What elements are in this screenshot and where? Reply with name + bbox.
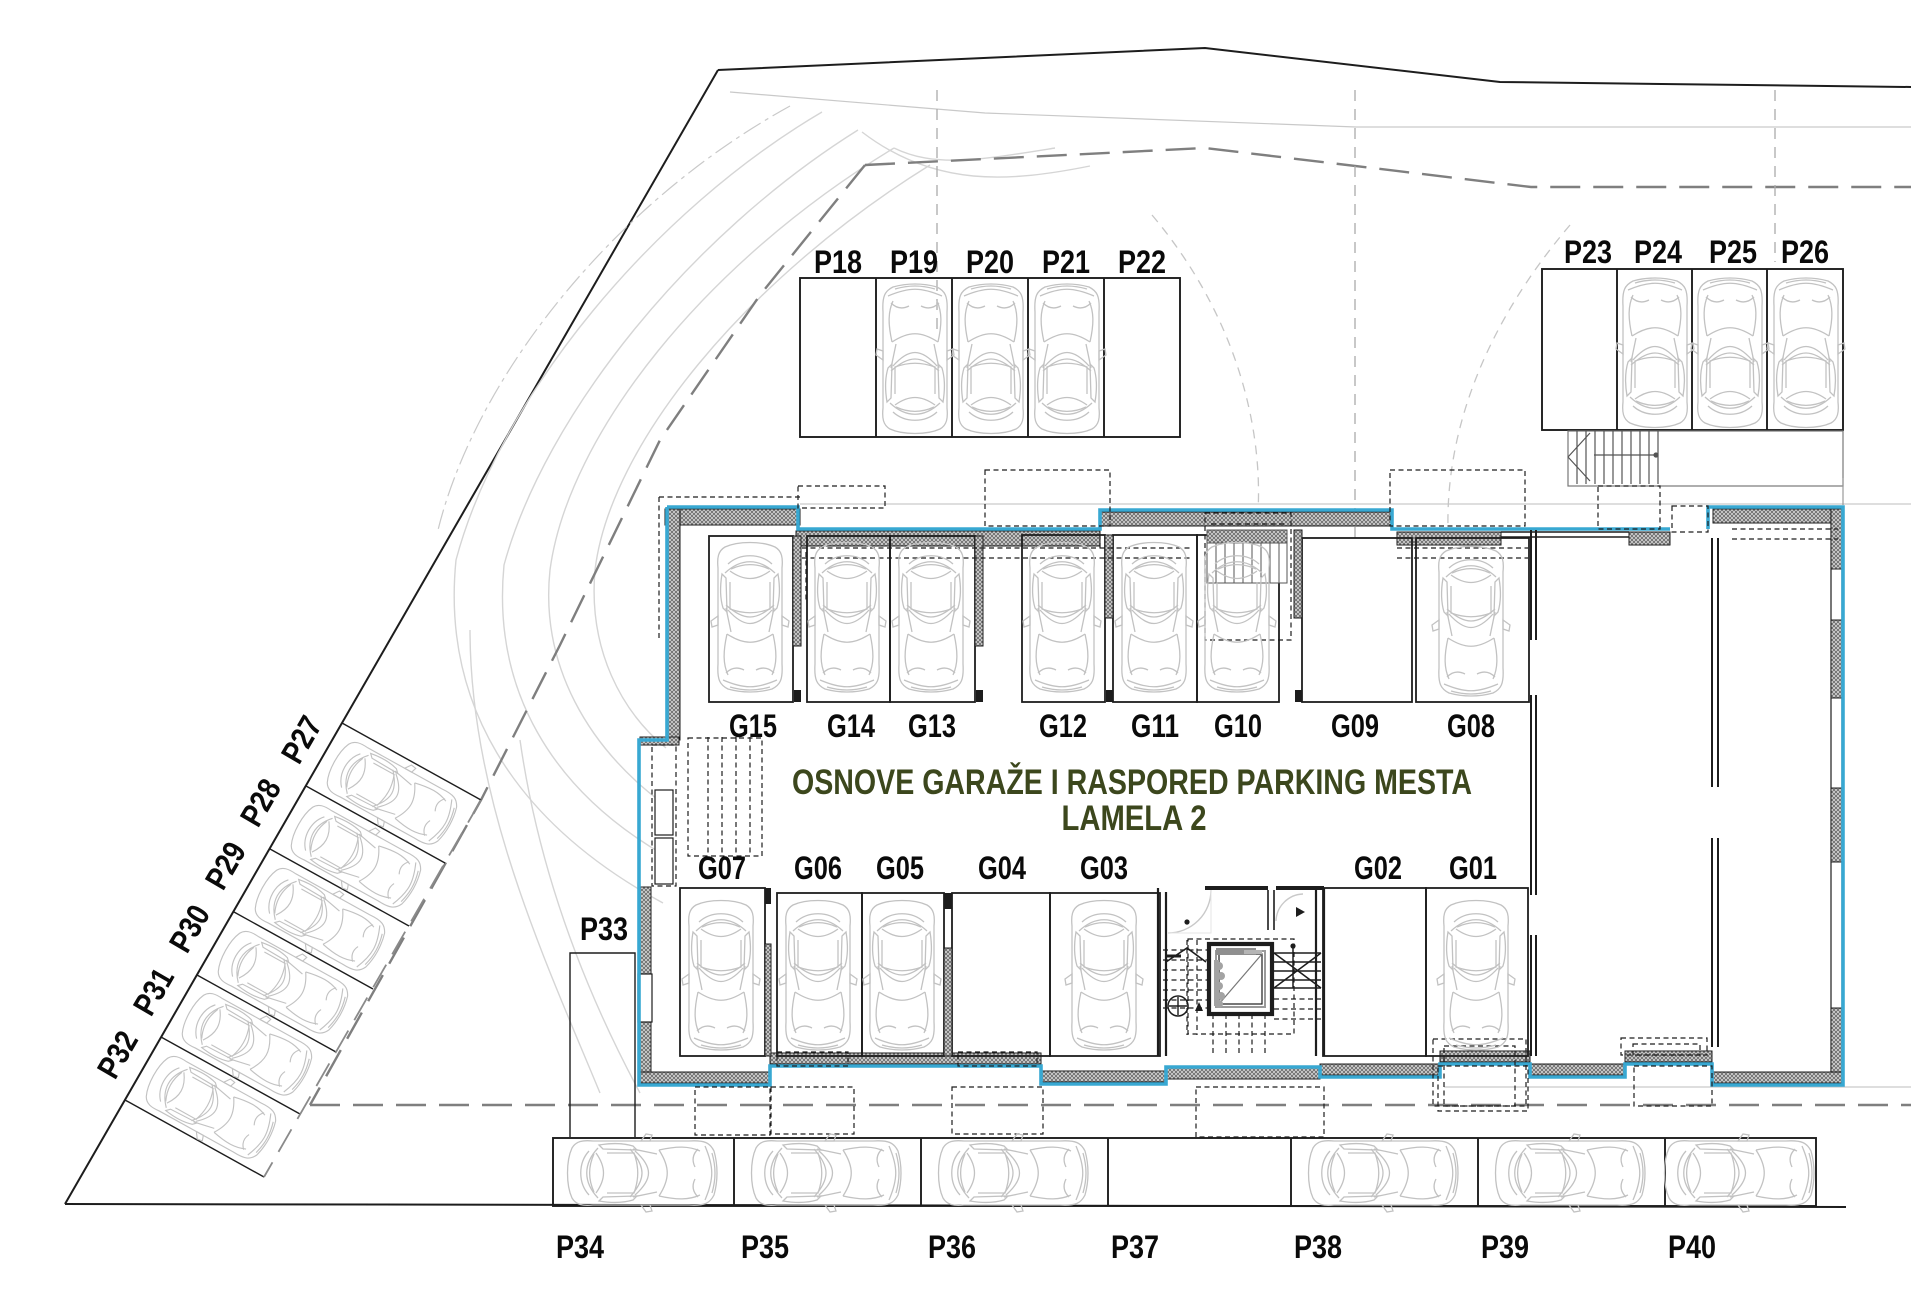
svg-text:P26: P26 bbox=[1781, 234, 1829, 270]
svg-text:P31: P31 bbox=[126, 962, 181, 1022]
svg-text:OSNOVE GARAŽE I RASPORED PARKI: OSNOVE GARAŽE I RASPORED PARKING MESTA bbox=[792, 762, 1472, 802]
svg-text:P25: P25 bbox=[1709, 234, 1757, 270]
svg-text:P32: P32 bbox=[90, 1025, 145, 1085]
svg-text:LAMELA 2: LAMELA 2 bbox=[1062, 799, 1207, 838]
svg-text:G11: G11 bbox=[1131, 708, 1179, 744]
svg-text:G08: G08 bbox=[1447, 708, 1495, 744]
svg-text:G14: G14 bbox=[827, 708, 875, 744]
svg-text:P35: P35 bbox=[741, 1229, 789, 1265]
svg-text:P24: P24 bbox=[1634, 234, 1682, 270]
svg-text:P19: P19 bbox=[890, 244, 938, 280]
svg-text:G10: G10 bbox=[1214, 708, 1262, 744]
svg-text:P23: P23 bbox=[1564, 234, 1612, 270]
svg-text:P34: P34 bbox=[556, 1229, 604, 1265]
svg-text:G01: G01 bbox=[1449, 850, 1497, 886]
svg-text:G15: G15 bbox=[729, 708, 777, 744]
svg-text:P21: P21 bbox=[1042, 244, 1090, 280]
svg-text:P29: P29 bbox=[198, 836, 253, 896]
svg-text:P40: P40 bbox=[1668, 1229, 1716, 1265]
svg-text:G09: G09 bbox=[1331, 708, 1379, 744]
svg-text:G04: G04 bbox=[978, 850, 1026, 886]
svg-text:P36: P36 bbox=[928, 1229, 976, 1265]
svg-text:P39: P39 bbox=[1481, 1229, 1529, 1265]
svg-text:G03: G03 bbox=[1080, 850, 1128, 886]
svg-text:G12: G12 bbox=[1039, 708, 1087, 744]
svg-text:G05: G05 bbox=[876, 850, 924, 886]
svg-text:G07: G07 bbox=[698, 850, 746, 886]
svg-text:G02: G02 bbox=[1354, 850, 1402, 886]
svg-text:G13: G13 bbox=[908, 708, 956, 744]
svg-text:P33: P33 bbox=[580, 911, 628, 947]
svg-text:P28: P28 bbox=[233, 773, 288, 833]
svg-text:P22: P22 bbox=[1118, 244, 1166, 280]
svg-text:P37: P37 bbox=[1111, 1229, 1159, 1265]
svg-text:G06: G06 bbox=[794, 850, 842, 886]
svg-text:P20: P20 bbox=[966, 244, 1014, 280]
svg-text:P30: P30 bbox=[162, 899, 217, 959]
svg-text:P18: P18 bbox=[814, 244, 862, 280]
svg-text:P38: P38 bbox=[1294, 1229, 1342, 1265]
